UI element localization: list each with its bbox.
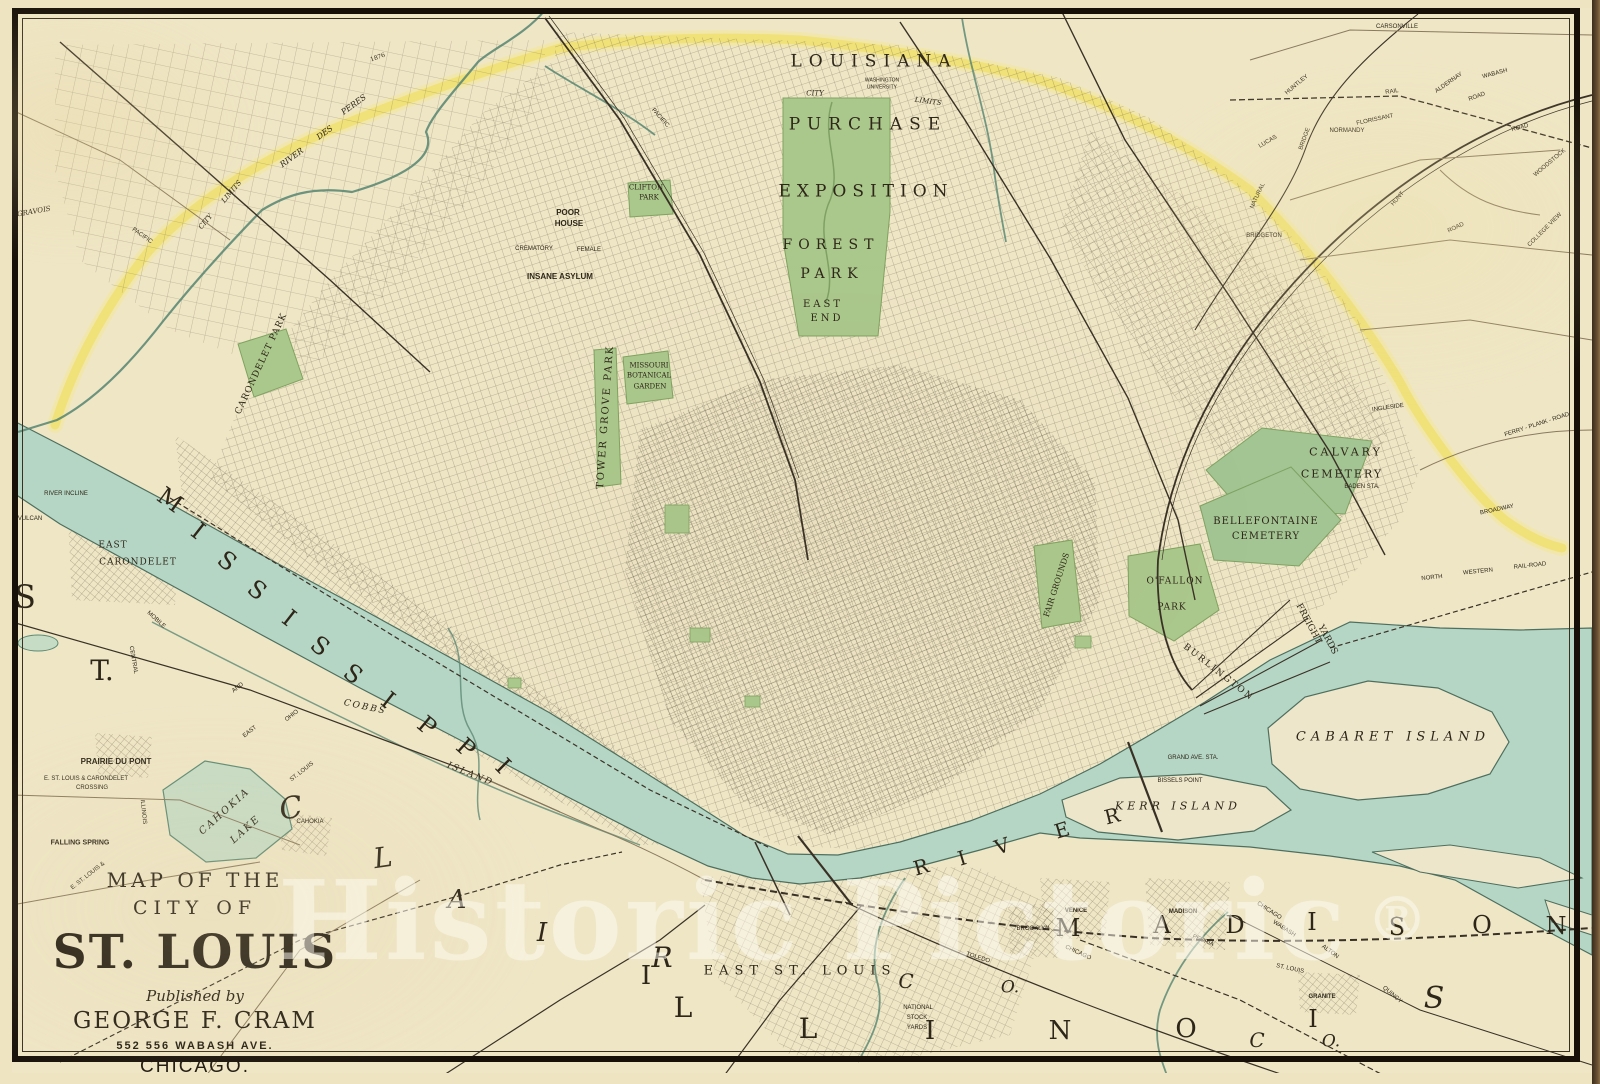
map-label: I bbox=[278, 606, 300, 631]
map-label: BRIDGE bbox=[1298, 127, 1312, 151]
map-label: GARDEN bbox=[634, 384, 667, 391]
map-label: N bbox=[1049, 1018, 1072, 1044]
map-label: CEMETERY bbox=[1232, 532, 1300, 542]
map-label: CITY bbox=[198, 213, 215, 231]
letter-illinois: I bbox=[641, 963, 651, 989]
map-label: CLIFTON bbox=[629, 185, 663, 192]
map-label: CITY bbox=[806, 91, 823, 98]
map-label: BISSELS POINT bbox=[1157, 778, 1202, 784]
map-label: I bbox=[1308, 1007, 1317, 1031]
map-label: HOUSE bbox=[555, 220, 583, 228]
map-label: CHICAGO bbox=[1064, 944, 1092, 961]
map-label: I bbox=[491, 754, 515, 778]
letter-mississippi: M bbox=[153, 483, 187, 517]
map-label: N bbox=[1546, 914, 1567, 938]
map-label: LUCAS bbox=[1258, 134, 1278, 149]
label-kerr-island: KERR ISLAND bbox=[1115, 801, 1241, 812]
map-label: S bbox=[213, 546, 241, 575]
map-label: DES bbox=[315, 125, 334, 142]
map-label: S bbox=[243, 575, 271, 604]
map-label: HUNT bbox=[1390, 191, 1405, 208]
map-label: EAST bbox=[98, 542, 127, 551]
map-label: PARK bbox=[1157, 604, 1186, 613]
map-label: QUINCY bbox=[1381, 985, 1403, 1005]
map-label: ISLAND bbox=[445, 762, 494, 789]
map-label: FEMALE bbox=[577, 247, 601, 253]
map-label: O bbox=[1175, 1016, 1196, 1042]
map-label: R bbox=[651, 944, 672, 972]
map-label: ST. LOUIS bbox=[1276, 963, 1305, 975]
map-label: C bbox=[898, 971, 913, 991]
title-block: MAP OF THE CITY OF ST. LOUIS Published b… bbox=[40, 868, 350, 1078]
map-label: O bbox=[1472, 913, 1492, 937]
map-label: FALLING SPRING bbox=[51, 840, 110, 847]
map-label: V bbox=[992, 834, 1012, 857]
map-label: C bbox=[1249, 1030, 1264, 1050]
map-label: ILLINOIS bbox=[139, 799, 148, 824]
map-label: WABASH bbox=[1482, 68, 1508, 80]
map-label: BOTANICAL bbox=[627, 373, 671, 380]
map-label: NATURAL bbox=[1249, 182, 1266, 210]
label-carondelet-park: CARONDELET PARK bbox=[234, 312, 289, 416]
map-label: L bbox=[799, 1015, 818, 1043]
map-label: RAIL-ROAD bbox=[1513, 561, 1546, 570]
map-label: PARK bbox=[800, 267, 863, 281]
map-label: CENTRAL bbox=[128, 646, 139, 675]
title-map-of-the: MAP OF THE bbox=[40, 868, 350, 892]
map-label: END bbox=[810, 314, 843, 324]
map-label: E bbox=[1052, 818, 1072, 841]
map-label: BROADWAY bbox=[1480, 503, 1515, 516]
map-label: O. bbox=[1001, 980, 1019, 997]
map-label: 1876 bbox=[370, 53, 386, 64]
map-label: GRAVOIS bbox=[17, 206, 52, 219]
label-forest-park: FOREST bbox=[783, 238, 880, 252]
map-label: WOODSTOCK bbox=[1533, 148, 1567, 178]
map-label: L bbox=[674, 994, 693, 1022]
map-label: MADISON bbox=[1169, 909, 1197, 915]
map-label: OHIO bbox=[284, 709, 300, 723]
letter-st-clair: S bbox=[14, 581, 36, 613]
page-edge-right bbox=[1592, 0, 1600, 1084]
label-insane-asylum: INSANE ASYLUM bbox=[527, 273, 593, 281]
map-label: ST. LOUIS bbox=[289, 761, 315, 783]
title-wabash-ave: 552 556 WABASH AVE. bbox=[40, 1040, 350, 1052]
label-louisiana: LOUISIANA bbox=[790, 54, 957, 71]
map-label: GRANITE bbox=[1309, 994, 1336, 1000]
map-label: WASHINGTON bbox=[865, 79, 899, 84]
label-fair-grounds: FAIR GROUNDS bbox=[1043, 552, 1071, 618]
map-label: PEORIA bbox=[1191, 934, 1214, 948]
map-label: LIMITS bbox=[221, 179, 244, 204]
map-label: INGLESIDE bbox=[1372, 403, 1405, 413]
map-label: EAST bbox=[803, 300, 843, 310]
map-label: FREIGHT bbox=[1294, 602, 1323, 645]
map-label: S bbox=[1389, 915, 1405, 939]
map-label: RIVER bbox=[279, 147, 305, 169]
map-label: MISSOURI bbox=[629, 363, 668, 370]
map-label: TOLEDO bbox=[965, 951, 990, 964]
map-label: ALDERNAY bbox=[1434, 71, 1464, 94]
label-cabaret-island: CABARET ISLAND bbox=[1296, 731, 1490, 744]
map-label: WABASH bbox=[1272, 919, 1297, 938]
map-label: BURLINGTON bbox=[1181, 643, 1255, 704]
map-label: I bbox=[377, 688, 399, 713]
map-label: S bbox=[1424, 984, 1445, 1014]
map-page: LOUISIANAPURCHASEEXPOSITIONFORESTPARKEAS… bbox=[0, 0, 1600, 1084]
label-exposition: EXPOSITION bbox=[778, 184, 953, 201]
map-label: RAIL bbox=[1385, 88, 1399, 96]
map-label: CARSONVILLE bbox=[1376, 24, 1418, 30]
map-label: MOBILE bbox=[146, 610, 167, 630]
map-label: P bbox=[452, 734, 480, 763]
map-label: ALTON bbox=[1320, 944, 1339, 960]
map-label: UNIVERSITY bbox=[867, 86, 897, 91]
map-label: EAST bbox=[242, 725, 258, 739]
map-label: P bbox=[413, 712, 441, 741]
map-label: PARK bbox=[639, 195, 659, 202]
map-label: I bbox=[187, 519, 209, 544]
map-label: FERRY - PLANK - ROAD bbox=[1504, 412, 1570, 439]
label-bellefontaine-cemetery: BELLEFONTAINE bbox=[1213, 517, 1318, 527]
label-purchase: PURCHASE bbox=[789, 117, 947, 134]
map-label: C bbox=[277, 792, 305, 826]
label-east-st-louis: EAST ST. LOUIS bbox=[704, 965, 897, 978]
map-label: ROAD bbox=[1468, 91, 1486, 103]
map-label: NORMANDY bbox=[1329, 128, 1364, 134]
map-label: S bbox=[339, 659, 367, 688]
map-label: LIMITS bbox=[914, 97, 942, 108]
map-label: CEMETERY bbox=[1301, 469, 1383, 480]
title-st-louis: ST. LOUIS bbox=[40, 925, 350, 980]
map-label: BRIDGETON bbox=[1246, 233, 1282, 239]
map-label: LAKE bbox=[229, 814, 263, 846]
map-label: POOR bbox=[556, 209, 580, 217]
letter-madison: M bbox=[1056, 916, 1081, 940]
map-label: NATIONAL bbox=[903, 1005, 933, 1011]
map-label: BROOKLYN bbox=[1017, 926, 1050, 932]
map-label: GRAND AVE. STA. bbox=[1168, 755, 1219, 761]
map-label: AND bbox=[231, 682, 245, 695]
page-margin-left bbox=[0, 0, 12, 1084]
title-published-by: Published by bbox=[40, 987, 350, 1005]
map-label: CARONDELET bbox=[99, 559, 177, 568]
map-label: RIVER INCLINE bbox=[44, 491, 88, 497]
map-label: S bbox=[306, 631, 334, 660]
map-label: NORTH bbox=[1421, 574, 1443, 582]
map-label: PACIFIC bbox=[131, 227, 153, 245]
page-margin-bottom bbox=[0, 1073, 1600, 1084]
map-label: I bbox=[925, 1018, 935, 1044]
map-label: I bbox=[955, 847, 968, 868]
map-label: CREMATORY bbox=[515, 246, 553, 252]
map-label: D bbox=[1225, 913, 1244, 937]
map-label: I bbox=[537, 920, 547, 946]
map-label: HUNTLEY bbox=[1284, 74, 1309, 97]
map-label: PERES bbox=[340, 93, 368, 116]
map-label: L bbox=[372, 843, 394, 873]
map-label: CHICAGO bbox=[1256, 901, 1283, 921]
letter-river: R bbox=[911, 855, 931, 878]
title-george-f-cram: GEORGE F. CRAM bbox=[40, 1008, 350, 1034]
map-label: COLLEGE VIEW bbox=[1527, 212, 1563, 248]
map-label: O. bbox=[1322, 1034, 1340, 1051]
page-margin-top bbox=[0, 0, 1600, 8]
map-label: ROAD bbox=[1447, 222, 1465, 235]
label-tower-grove-park: TOWER GROVE PARK bbox=[596, 345, 616, 490]
map-label: PRAIRIE DU PONT bbox=[81, 758, 152, 766]
map-label: E. ST. LOUIS & CARONDELET bbox=[44, 776, 128, 782]
map-label: PACIFIC bbox=[650, 107, 670, 128]
map-label: I bbox=[1307, 910, 1316, 934]
map-label: A bbox=[1153, 913, 1170, 937]
label-ofallon-park: O'FALLON bbox=[1146, 578, 1203, 587]
map-label: ROAD bbox=[1511, 123, 1529, 133]
label-calvary-cemetery: CALVARY bbox=[1309, 447, 1383, 458]
map-label: WESTERN bbox=[1463, 567, 1493, 576]
map-label: VULCAN bbox=[18, 516, 42, 522]
map-label: CROSSING bbox=[76, 785, 108, 791]
map-label: A bbox=[448, 887, 467, 913]
map-label: T. bbox=[90, 657, 113, 685]
map-label: BADEN STA. bbox=[1344, 484, 1379, 490]
title-city-of: CITY OF bbox=[40, 897, 350, 919]
map-label: FLORISSANT bbox=[1356, 113, 1394, 127]
